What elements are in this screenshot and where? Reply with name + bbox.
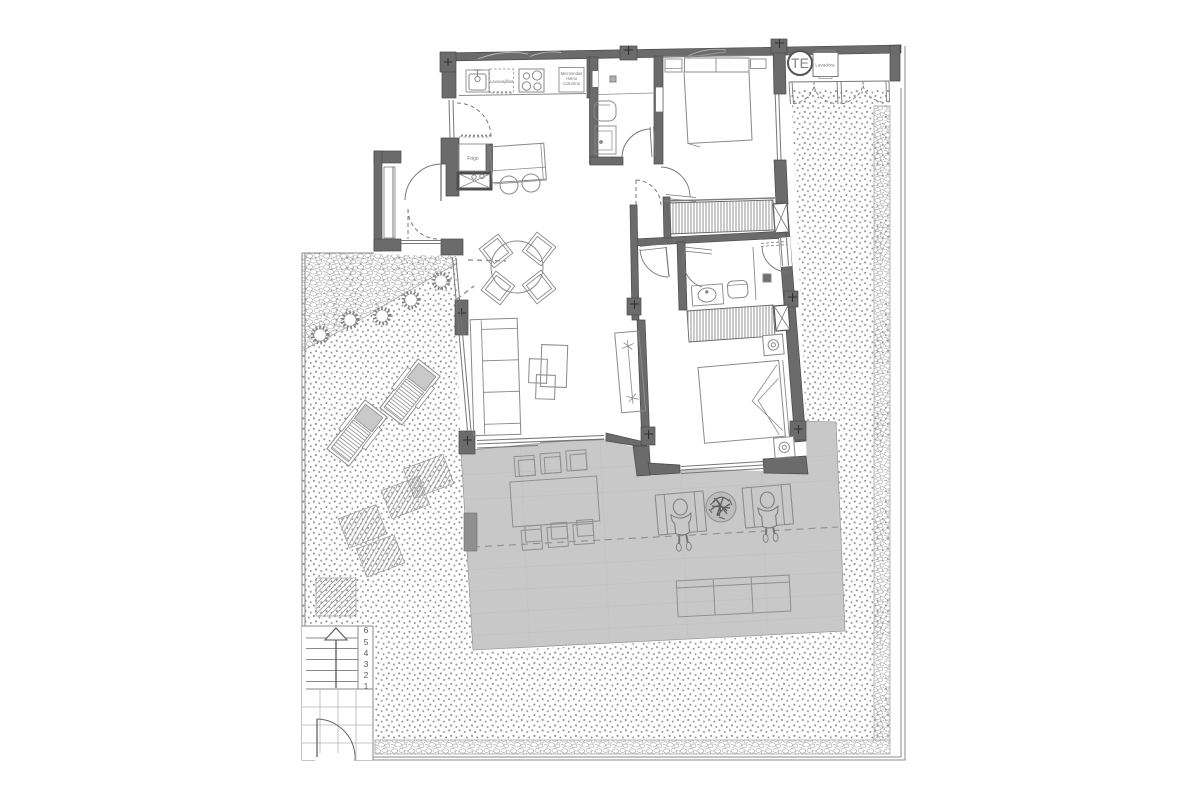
svg-text:2: 2 bbox=[364, 670, 369, 680]
svg-text:TE: TE bbox=[791, 55, 809, 71]
svg-text:Frigo: Frigo bbox=[467, 156, 479, 162]
svg-text:5: 5 bbox=[364, 637, 369, 647]
svg-text:6: 6 bbox=[364, 625, 369, 635]
svg-text:Lavadora: Lavadora bbox=[815, 63, 835, 68]
svg-text:Lavavajillas: Lavavajillas bbox=[490, 79, 514, 84]
svg-text:3: 3 bbox=[364, 659, 369, 669]
svg-text:4: 4 bbox=[364, 648, 369, 658]
svg-text:1: 1 bbox=[364, 681, 369, 691]
svg-text:Columna: Columna bbox=[563, 81, 580, 86]
